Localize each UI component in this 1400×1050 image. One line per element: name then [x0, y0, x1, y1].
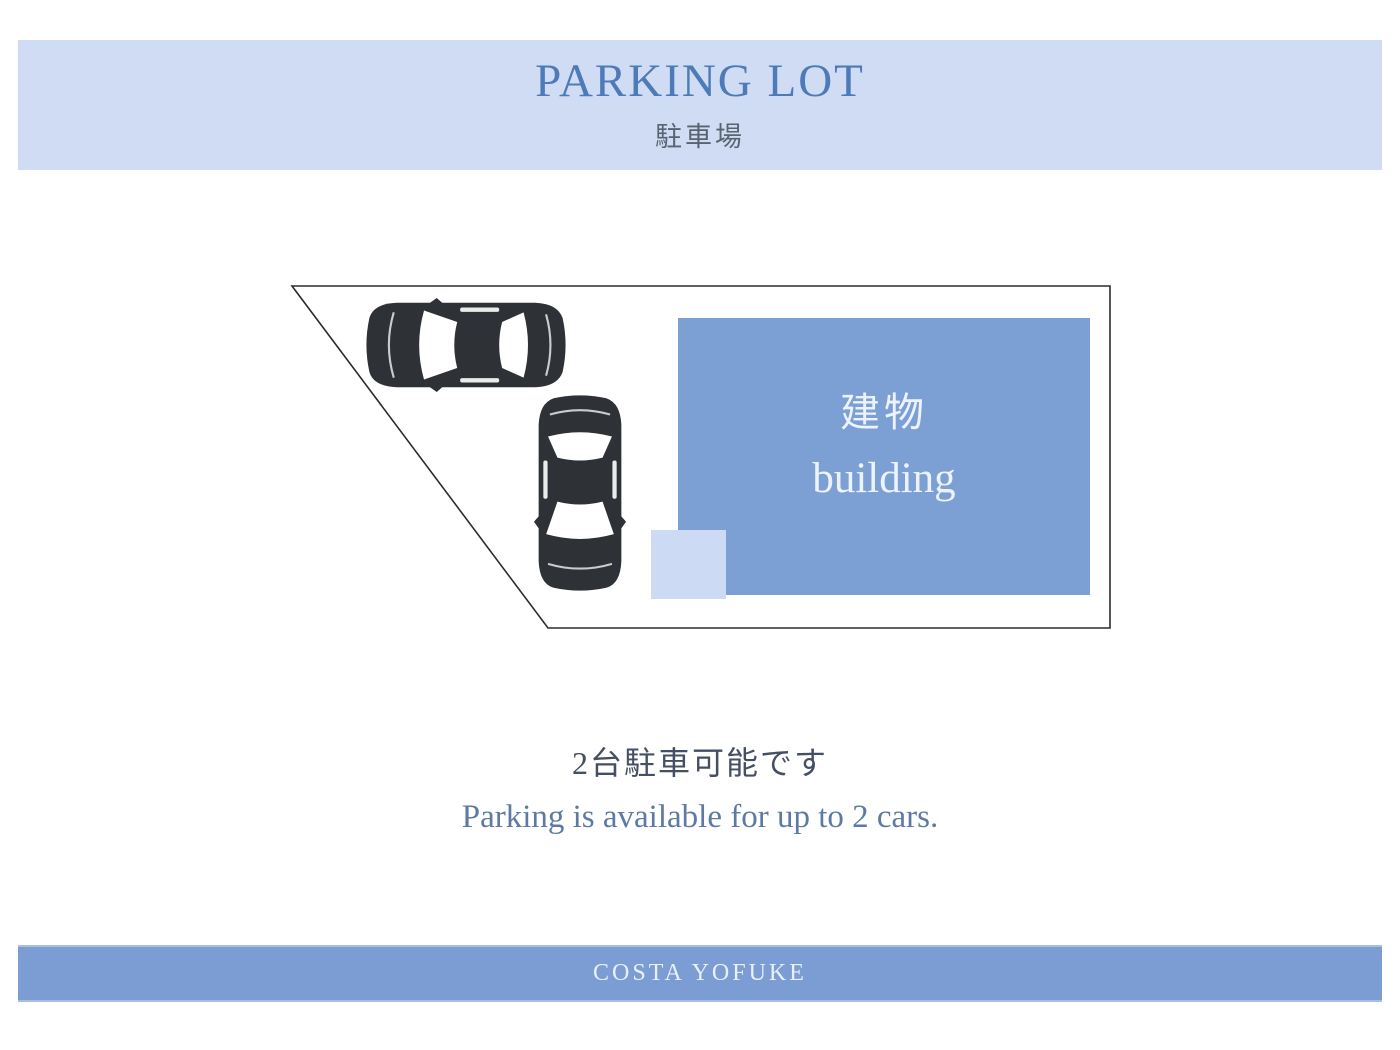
footer-band: COSTA YOFUKE — [18, 945, 1382, 1002]
page-subtitle-japanese: 駐車場 — [18, 115, 1382, 154]
caption-japanese: 2台駐車可能です — [0, 738, 1400, 784]
building-label-english: building — [812, 454, 955, 503]
parking-lot-slide: PARKING LOT 駐車場 建物 building — [0, 0, 1400, 1050]
car-top-view-glyph — [533, 392, 627, 593]
caption-english: Parking is available for up to 2 cars. — [0, 799, 1400, 836]
car-top-view-glyph — [363, 297, 568, 393]
header-band: PARKING LOT 駐車場 — [18, 40, 1382, 170]
entrance-square — [651, 530, 726, 599]
page-title: PARKING LOT — [18, 54, 1382, 108]
car-top-view-icon — [533, 392, 627, 593]
footer-brand: COSTA YOFUKE — [593, 960, 807, 987]
car-top-view-icon — [363, 297, 568, 393]
building-block: 建物 building — [678, 318, 1090, 595]
caption: 2台駐車可能です Parking is available for up to … — [0, 738, 1400, 836]
building-label-japanese: 建物 — [840, 380, 928, 438]
